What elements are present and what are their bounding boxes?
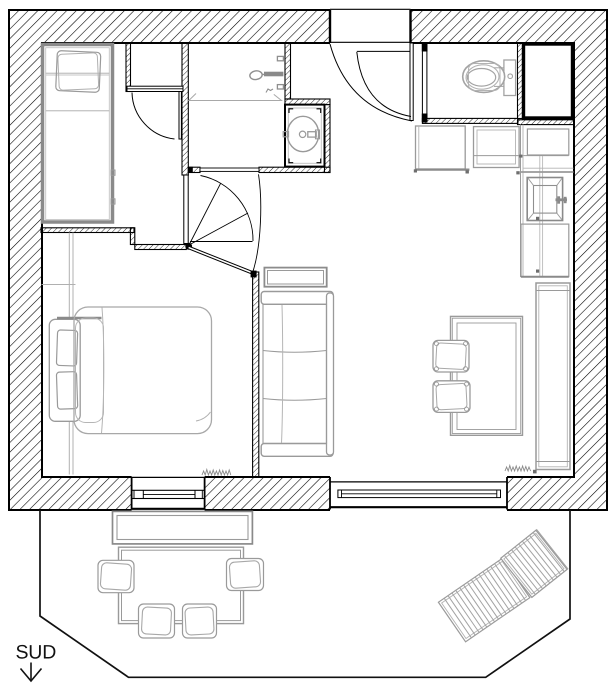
svg-text:SUD: SUD xyxy=(16,642,57,664)
